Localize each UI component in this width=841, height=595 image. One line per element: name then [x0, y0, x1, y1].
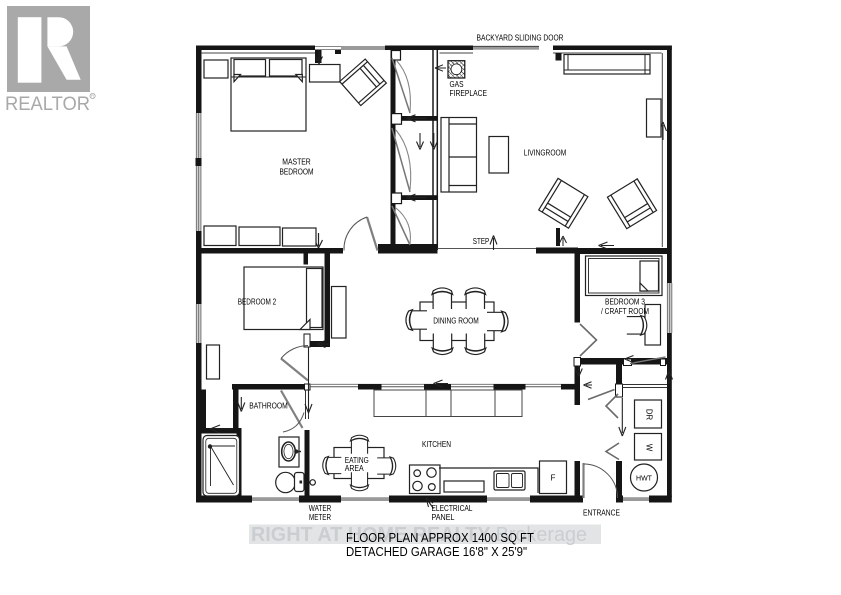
svg-text:/ CRAFT ROOM: / CRAFT ROOM [601, 306, 649, 316]
svg-text:FLOOR PLAN APPROX 1400 SQ FT: FLOOR PLAN APPROX 1400 SQ FT [346, 530, 534, 545]
svg-text:DR: DR [645, 409, 654, 421]
svg-text:AREA: AREA [345, 464, 364, 473]
svg-text:KITCHEN: KITCHEN [422, 439, 451, 449]
svg-text:FIREPLACE: FIREPLACE [450, 89, 488, 98]
svg-text:DETACHED GARAGE 16'8" X 25'9": DETACHED GARAGE 16'8" X 25'9" [346, 544, 527, 559]
svg-text:R: R [91, 94, 94, 99]
svg-text:BATHROOM: BATHROOM [249, 401, 288, 411]
svg-text:ELECTRICAL: ELECTRICAL [432, 504, 473, 513]
svg-text:STEP: STEP [473, 236, 490, 246]
svg-text:BEDROOM: BEDROOM [280, 167, 314, 177]
svg-text:F: F [551, 474, 556, 483]
svg-text:PANEL: PANEL [432, 513, 455, 522]
svg-text:METER: METER [309, 513, 331, 522]
svg-text:GAS: GAS [450, 80, 464, 89]
svg-text:ENTRANCE: ENTRANCE [583, 509, 620, 518]
svg-text:HWT: HWT [636, 476, 653, 483]
svg-text:LIVINGROOM: LIVINGROOM [524, 149, 567, 158]
svg-text:W: W [645, 444, 654, 452]
svg-text:BEDROOM 3: BEDROOM 3 [605, 297, 645, 307]
svg-text:REALTOR: REALTOR [5, 93, 90, 115]
svg-text:BEDROOM 2: BEDROOM 2 [238, 297, 277, 307]
svg-text:DINING ROOM: DINING ROOM [433, 317, 479, 326]
svg-text:WATER: WATER [309, 504, 332, 513]
svg-text:BACKYARD SLIDING DOOR: BACKYARD SLIDING DOOR [477, 34, 564, 43]
svg-text:MASTER: MASTER [282, 157, 311, 167]
